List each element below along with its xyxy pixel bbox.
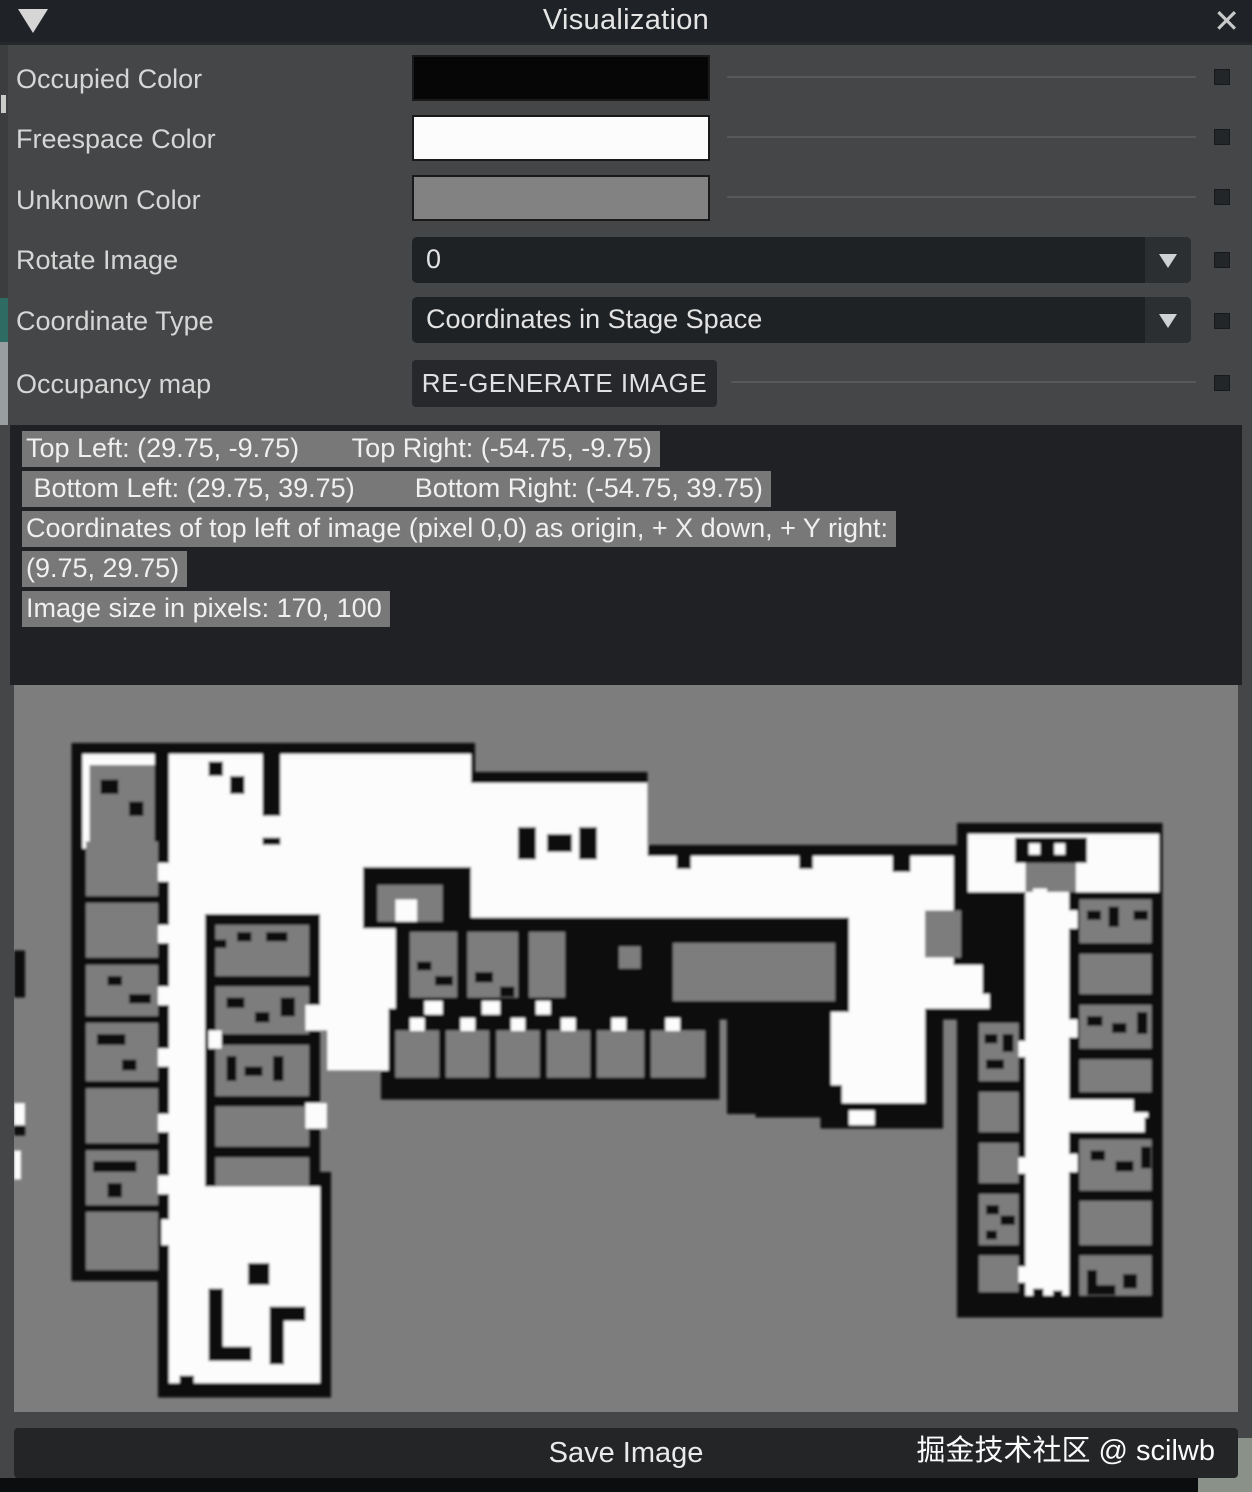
info-line-corners-top: Top Left: (29.75, -9.75) Top Right: (-54… <box>22 433 660 464</box>
chevron-down-icon <box>1159 314 1177 328</box>
occupied-color-label: Occupied Color <box>16 64 202 95</box>
coordinates-info-box: Top Left: (29.75, -9.75) Top Right: (-54… <box>10 425 1242 685</box>
titlebar-seam <box>0 42 1252 45</box>
info-line-origin-desc: Coordinates of top left of image (pixel … <box>22 513 896 544</box>
watermark-text: 掘金技术社区 @ scilwb <box>916 1427 1215 1469</box>
row-separator-line <box>731 381 1196 383</box>
info-line-corners-bottom: Bottom Left: (29.75, 39.75) Bottom Right… <box>22 473 771 504</box>
info-line-image-size: Image size in pixels: 170, 100 <box>22 593 390 624</box>
visualization-window: Visualization ✕ Occupied Color Freespace… <box>0 0 1252 1492</box>
row-option-square[interactable] <box>1214 189 1230 205</box>
rotate-image-dropdown[interactable]: 0 <box>412 237 1191 283</box>
row-option-square[interactable] <box>1214 69 1230 85</box>
occupancy-map-label: Occupancy map <box>16 369 211 400</box>
edge-artifact <box>1 95 6 113</box>
bottom-strip <box>0 1478 1252 1492</box>
row-option-square[interactable] <box>1214 252 1230 268</box>
edge-light-artifact <box>0 342 8 425</box>
rotate-image-label: Rotate Image <box>16 245 178 276</box>
occupancy-map-image <box>14 685 1238 1412</box>
row-separator-line <box>727 136 1196 138</box>
coordinate-type-label: Coordinate Type <box>16 306 214 337</box>
unknown-color-label: Unknown Color <box>16 185 201 216</box>
row-separator-line <box>727 196 1196 198</box>
freespace-color-swatch[interactable] <box>412 115 710 161</box>
chevron-down-icon <box>1159 254 1177 268</box>
window-title: Visualization <box>0 4 1252 37</box>
row-separator-line <box>727 76 1196 78</box>
dropdown-arrow-zone[interactable] <box>1145 237 1191 283</box>
rotate-image-value: 0 <box>426 244 441 275</box>
row-option-square[interactable] <box>1214 375 1230 391</box>
dropdown-arrow-zone[interactable] <box>1145 297 1191 343</box>
coordinate-type-dropdown[interactable]: Coordinates in Stage Space <box>412 297 1191 343</box>
freespace-color-label: Freespace Color <box>16 124 216 155</box>
row-option-square[interactable] <box>1214 313 1230 329</box>
regenerate-image-button[interactable]: RE-GENERATE IMAGE <box>412 360 717 407</box>
row-option-square[interactable] <box>1214 129 1230 145</box>
unknown-color-swatch[interactable] <box>412 175 710 221</box>
occupied-color-swatch[interactable] <box>412 55 710 101</box>
coordinate-type-value: Coordinates in Stage Space <box>426 304 762 335</box>
close-icon[interactable]: ✕ <box>1213 2 1240 40</box>
info-line-origin-value: (9.75, 29.75) <box>22 553 187 584</box>
edge-teal-artifact <box>0 298 8 342</box>
